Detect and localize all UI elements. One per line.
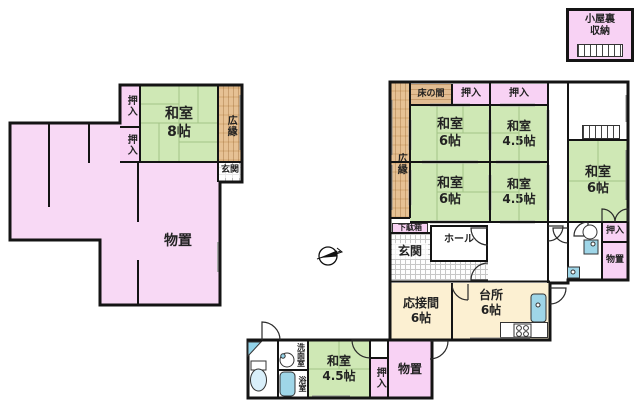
entrance-right-floor-bottom — [430, 262, 488, 280]
room-storage-annex — [388, 340, 432, 398]
room-washitsu-6-east — [568, 140, 628, 222]
room-veranda-right — [390, 82, 410, 218]
room-reception — [390, 283, 452, 340]
shoe-cabinet — [392, 223, 428, 233]
corridor — [548, 82, 568, 223]
room-washitsu-8 — [140, 85, 218, 162]
room-closet-left-bottom — [120, 127, 140, 162]
room-closet-a — [452, 84, 490, 105]
room-closet-annex — [370, 358, 388, 398]
attic-ladder — [577, 44, 623, 57]
room-washitsu-45-ne — [490, 105, 548, 162]
room-veranda-left — [218, 85, 242, 161]
compass-icon — [317, 247, 342, 265]
room-hall — [430, 225, 488, 262]
room-storage-east — [602, 242, 628, 280]
room-washitsu-6-nw — [410, 105, 490, 162]
kitchen-counter — [500, 322, 548, 338]
entrance-right-floor-left — [390, 233, 430, 280]
room-entrance-left — [218, 161, 242, 182]
staircase — [582, 125, 620, 139]
storage-left-label: 物置 — [140, 231, 216, 253]
room-closet-east — [602, 222, 628, 242]
room-washitsu-45-annex — [308, 340, 370, 398]
room-washitsu-45-se — [490, 162, 548, 222]
room-toilet — [248, 340, 278, 398]
room-bathroom — [278, 370, 308, 398]
room-closet-left-top — [120, 85, 140, 127]
floor-plan: 押入 押入 和室 8帖 広縁 玄関 物置 広縁 床の間 押入 押入 和室 6帖 … — [0, 0, 640, 407]
room-washitsu-6-sw — [410, 162, 490, 222]
washroom-east — [568, 222, 602, 280]
room-tokonoma — [410, 84, 452, 105]
corridor-south — [488, 222, 548, 283]
room-closet-b — [490, 84, 548, 105]
room-washroom — [278, 340, 308, 370]
